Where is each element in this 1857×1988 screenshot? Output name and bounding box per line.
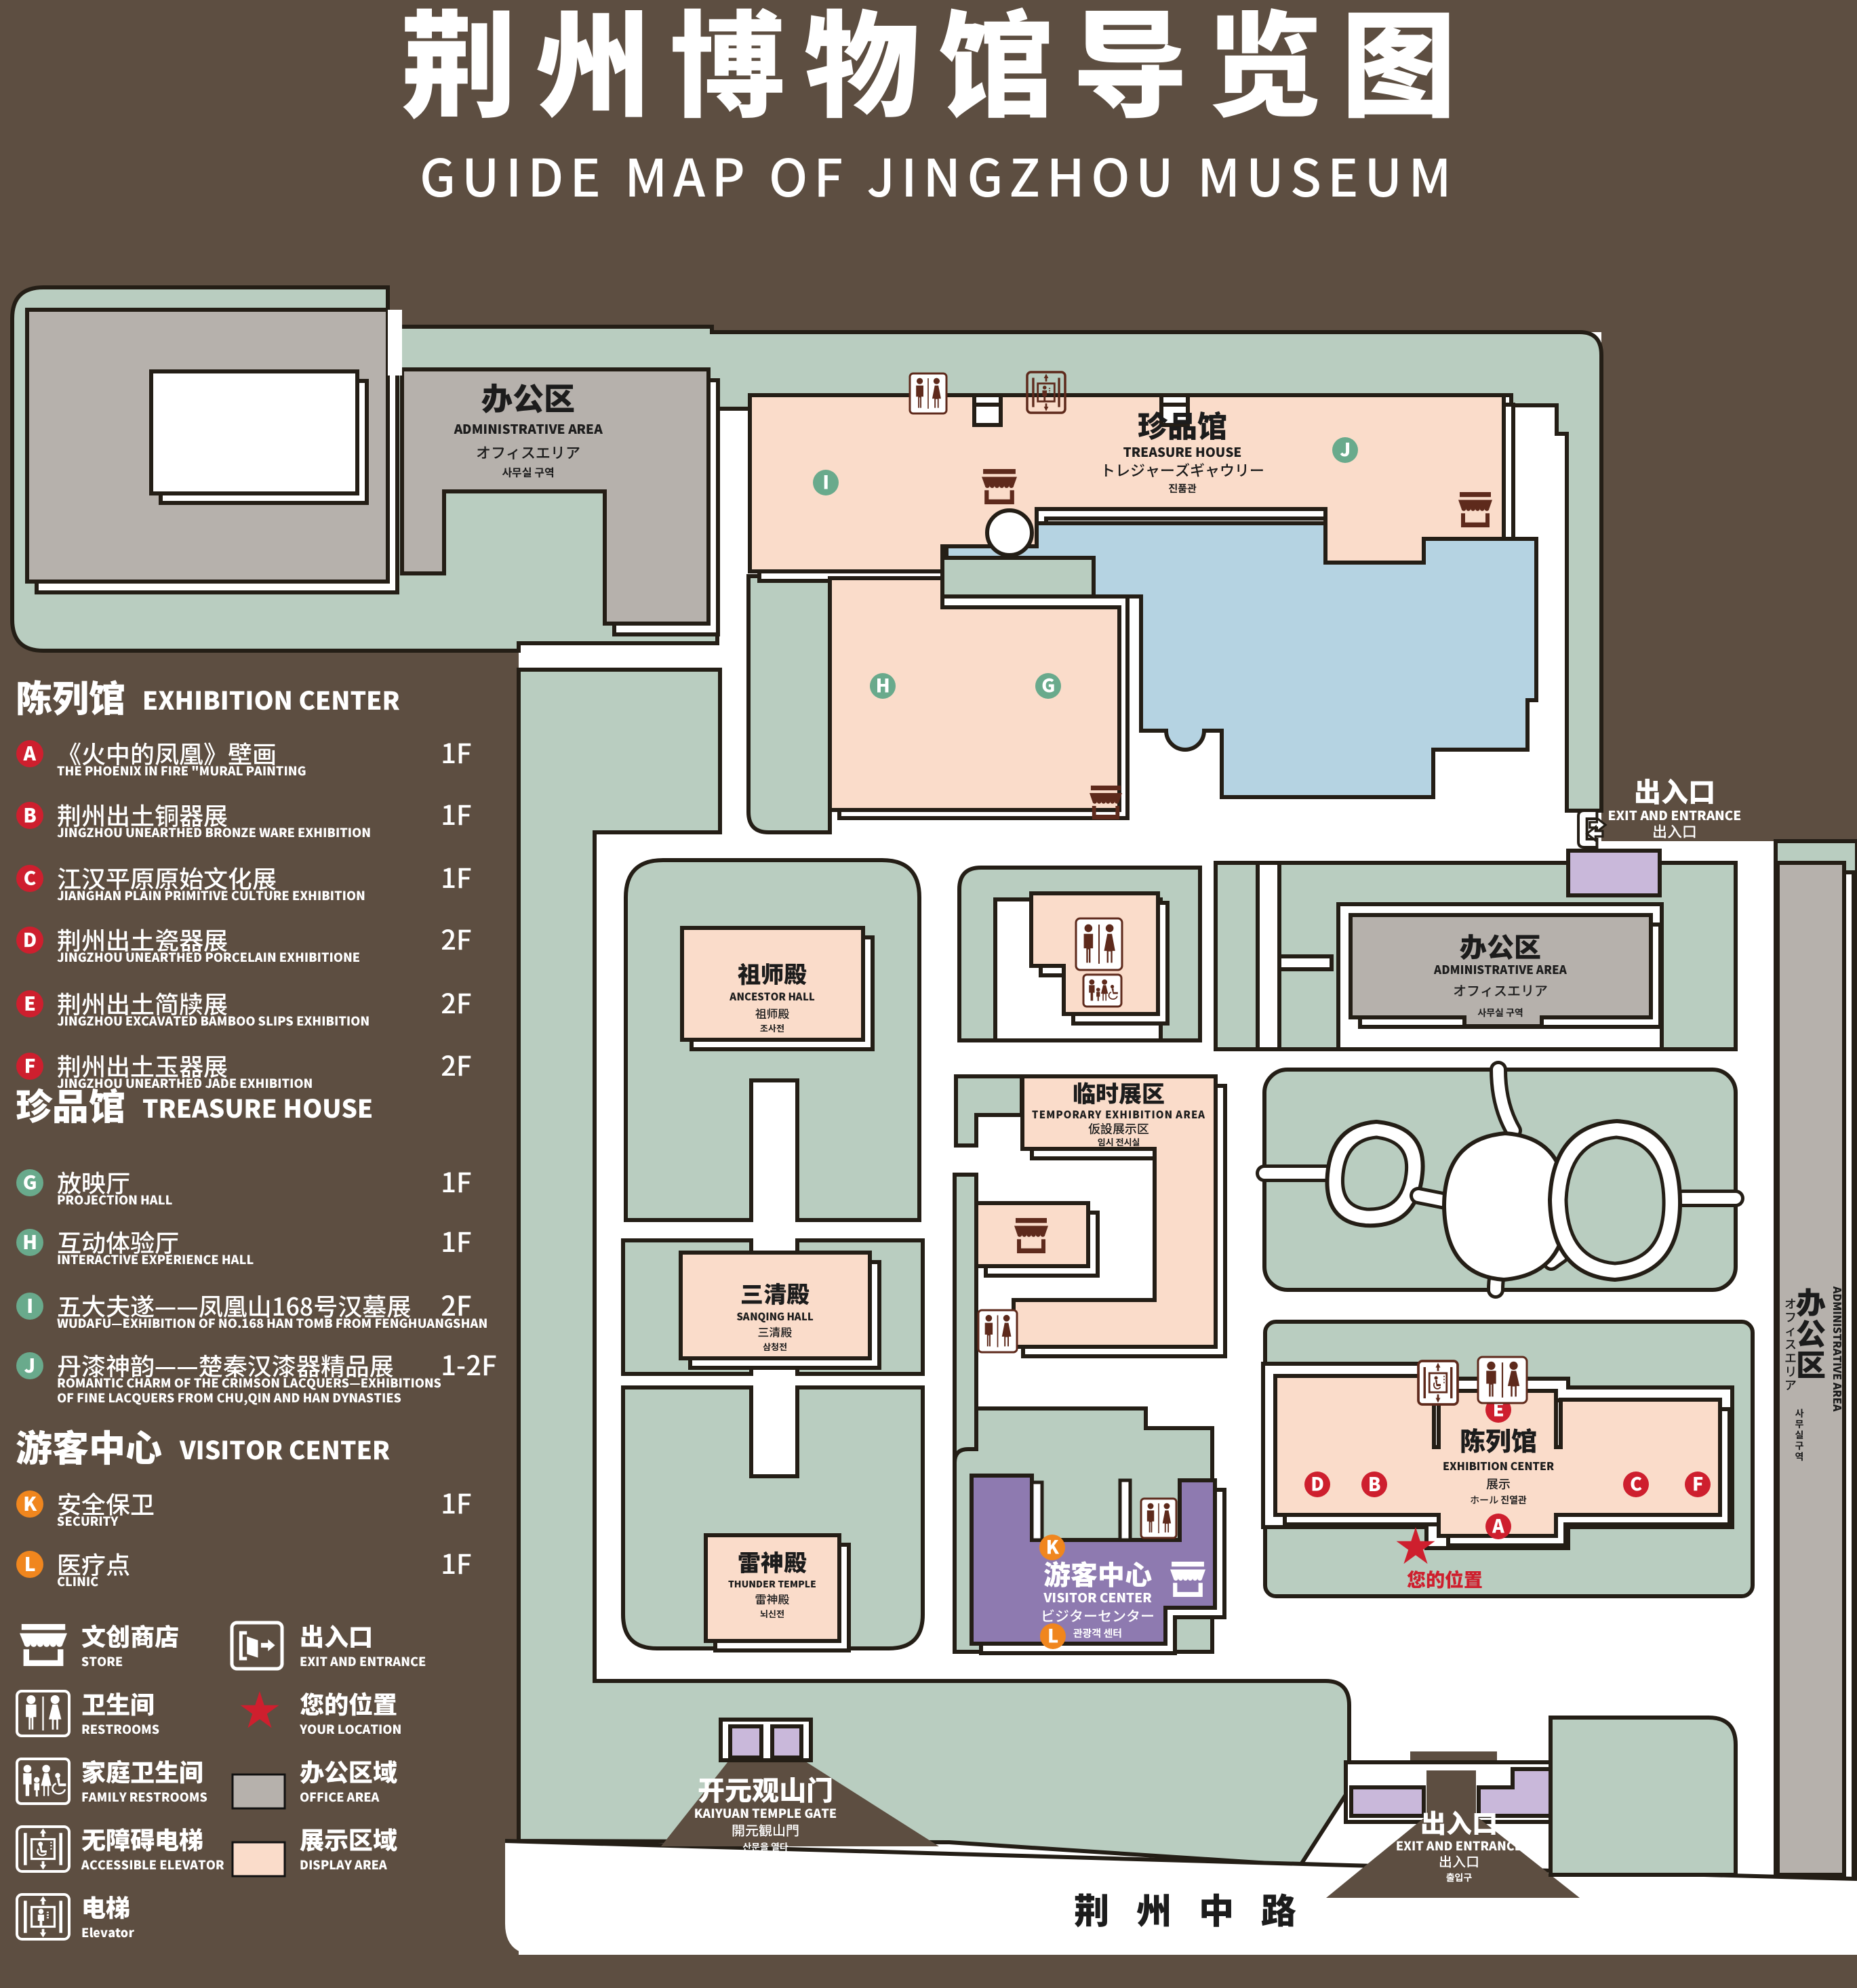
- svg-text:オフィスエリア: オフィスエリア: [476, 441, 580, 463]
- svg-text:뇌신전: 뇌신전: [760, 1607, 784, 1620]
- svg-text:산문을 열다: 산문을 열다: [742, 1840, 788, 1854]
- svg-text:JINGZHOU EXCAVATED BAMBOO SLIP: JINGZHOU EXCAVATED BAMBOO SLIPS EXHIBITI…: [57, 1012, 370, 1030]
- svg-text:出入口: 出入口: [1652, 820, 1697, 842]
- svg-text:您的位置: 您的位置: [1407, 1566, 1483, 1593]
- svg-text:TREASURE HOUSE: TREASURE HOUSE: [1123, 443, 1242, 461]
- svg-text:E: E: [24, 990, 36, 1017]
- svg-text:陈列馆: 陈列馆: [1460, 1421, 1537, 1458]
- svg-text:사무실 구역: 사무실 구역: [1477, 1006, 1523, 1019]
- svg-text:F: F: [1692, 1470, 1703, 1497]
- svg-text:JINGZHOU UNEARTHED PORCELAIN E: JINGZHOU UNEARTHED PORCELAIN EXHIBITIONE: [57, 948, 360, 966]
- svg-text:JIANGHAN PLAIN PRIMITIVE CULTU: JIANGHAN PLAIN PRIMITIVE CULTURE EXHIBIT…: [57, 887, 365, 904]
- svg-text:임시 전시실: 임시 전시실: [1098, 1135, 1140, 1148]
- svg-text:JINGZHOU UNEARTHED BRONZE WARE: JINGZHOU UNEARTHED BRONZE WARE EXHIBITIO…: [57, 824, 371, 841]
- svg-text:GUIDE MAP OF JINGZHOU MUSEUM: GUIDE MAP OF JINGZHOU MUSEUM: [420, 137, 1458, 211]
- svg-text:B: B: [23, 801, 36, 828]
- svg-text:G: G: [23, 1169, 37, 1196]
- svg-text:展示: 展示: [1486, 1475, 1511, 1493]
- svg-text:三清殿: 三清殿: [758, 1323, 793, 1340]
- svg-text:PROJECTION HALL: PROJECTION HALL: [57, 1191, 173, 1209]
- svg-text:办公区域: 办公区域: [300, 1753, 397, 1789]
- svg-text:电梯: 电梯: [81, 1889, 130, 1924]
- svg-text:ビジターセンター: ビジターセンター: [1041, 1606, 1155, 1626]
- svg-text:1F: 1F: [441, 1482, 471, 1522]
- svg-text:出入口: 出入口: [1420, 1803, 1498, 1840]
- svg-text:荆 州 中 路: 荆 州 中 路: [1074, 1883, 1306, 1934]
- svg-text:荆州博物馆导览图: 荆州博物馆导览图: [401, 0, 1475, 140]
- svg-text:G: G: [1041, 672, 1055, 698]
- svg-text:RESTROOMS: RESTROOMS: [81, 1720, 159, 1738]
- svg-text:雷神殿: 雷神殿: [755, 1590, 790, 1607]
- svg-text:B: B: [1368, 1470, 1381, 1497]
- svg-text:J: J: [24, 1352, 35, 1379]
- svg-text:无障碍电梯: 无障碍电梯: [81, 1821, 203, 1857]
- svg-text:K: K: [23, 1490, 37, 1517]
- svg-text:C: C: [1630, 1470, 1642, 1497]
- svg-text:EXIT AND ENTRANCE: EXIT AND ENTRANCE: [300, 1652, 426, 1670]
- svg-text:C: C: [24, 864, 37, 891]
- svg-text:출입구: 출입구: [1446, 1871, 1473, 1884]
- svg-text:VISITOR CENTER: VISITOR CENTER: [179, 1430, 390, 1467]
- svg-text:办公区: 办公区: [481, 375, 575, 420]
- svg-text:THUNDER TEMPLE: THUNDER TEMPLE: [728, 1577, 816, 1591]
- svg-text:출입구: 출입구: [1660, 840, 1689, 855]
- svg-text:1F: 1F: [441, 794, 471, 833]
- svg-text:1F: 1F: [441, 732, 471, 771]
- svg-text:三清殿: 三清殿: [740, 1276, 810, 1310]
- svg-text:TREASURE HOUSE: TREASURE HOUSE: [142, 1089, 373, 1125]
- svg-text:2F: 2F: [441, 982, 471, 1021]
- svg-text:游客中心: 游客中心: [1043, 1554, 1152, 1593]
- svg-text:办公区: 办公区: [1796, 1279, 1826, 1385]
- svg-text:A: A: [1492, 1512, 1505, 1539]
- svg-text:D: D: [23, 926, 37, 953]
- svg-text:文创商店: 文创商店: [81, 1618, 179, 1653]
- svg-text:진품관: 진품관: [1168, 481, 1196, 495]
- svg-text:I: I: [26, 1292, 33, 1319]
- svg-text:SANQING HALL: SANQING HALL: [736, 1310, 813, 1324]
- svg-text:ADMINISTRATIVE AREA: ADMINISTRATIVE AREA: [1830, 1286, 1846, 1412]
- svg-text:家庭卫生间: 家庭卫生间: [81, 1753, 203, 1789]
- svg-text:VISITOR CENTER: VISITOR CENTER: [1043, 1588, 1152, 1606]
- svg-text:2F: 2F: [441, 1044, 471, 1084]
- svg-text:STORE: STORE: [81, 1652, 123, 1670]
- svg-text:出入口: 出入口: [1439, 1851, 1479, 1871]
- svg-text:WUDAFU—EXHIBITION OF NO.168 HA: WUDAFU—EXHIBITION OF NO.168 HAN TOMB FRO…: [57, 1314, 487, 1332]
- svg-text:EXHIBITION CENTER: EXHIBITION CENTER: [142, 681, 400, 717]
- svg-text:オフィスエリア: オフィスエリア: [1784, 1295, 1797, 1394]
- svg-text:THE PHOENIX IN FIRE "MURAL PAI: THE PHOENIX IN FIRE "MURAL PAINTING: [57, 762, 306, 779]
- svg-text:D: D: [1311, 1470, 1324, 1497]
- svg-text:L: L: [24, 1550, 36, 1577]
- svg-text:사무실구역: 사무실구역: [1795, 1406, 1804, 1463]
- svg-text:EXHIBITION CENTER: EXHIBITION CENTER: [1443, 1457, 1554, 1474]
- svg-text:1F: 1F: [441, 1161, 471, 1200]
- svg-text:YOUR LOCATION: YOUR LOCATION: [299, 1720, 401, 1738]
- svg-text:INTERACTIVE EXPERIENCE HALL: INTERACTIVE EXPERIENCE HALL: [57, 1251, 254, 1268]
- svg-text:珍品馆: 珍品馆: [1138, 403, 1227, 446]
- svg-text:ホール 진열관: ホール 진열관: [1470, 1493, 1527, 1507]
- svg-text:临时展区: 临时展区: [1073, 1076, 1165, 1109]
- svg-text:OFFICE AREA: OFFICE AREA: [300, 1788, 380, 1806]
- svg-text:雷神殿: 雷神殿: [738, 1545, 807, 1578]
- svg-text:您的位置: 您的位置: [300, 1686, 397, 1721]
- svg-text:游客中心: 游客中心: [16, 1419, 162, 1472]
- svg-text:1-2F: 1-2F: [441, 1344, 497, 1383]
- svg-text:조사전: 조사전: [760, 1021, 784, 1034]
- svg-text:珍品馆: 珍品馆: [16, 1077, 125, 1131]
- svg-text:A: A: [23, 739, 37, 767]
- svg-text:办公区: 办公区: [1460, 926, 1541, 965]
- svg-text:CLINIC: CLINIC: [57, 1573, 98, 1590]
- svg-text:ADMINISTRATIVE AREA: ADMINISTRATIVE AREA: [454, 420, 603, 438]
- svg-text:Elevator: Elevator: [81, 1924, 134, 1941]
- svg-text:OF FINE LACQUERS FROM CHU,QIN: OF FINE LACQUERS FROM CHU,QIN AND HAN DY…: [57, 1389, 401, 1406]
- svg-text:オフィスエリア: オフィスエリア: [1453, 980, 1548, 1000]
- svg-text:祖师殿: 祖师殿: [755, 1005, 790, 1021]
- svg-text:2F: 2F: [441, 918, 471, 958]
- svg-text:J: J: [1340, 436, 1351, 462]
- svg-text:FAMILY RESTROOMS: FAMILY RESTROOMS: [81, 1788, 207, 1806]
- svg-text:トレジャーズギャウリー: トレジャーズギャウリー: [1100, 459, 1264, 481]
- svg-text:卫生间: 卫生间: [81, 1686, 155, 1721]
- svg-text:祖师殿: 祖师殿: [738, 956, 807, 990]
- svg-text:관광객 센터: 관광객 센터: [1073, 1626, 1122, 1640]
- svg-text:I: I: [822, 468, 828, 495]
- svg-text:DISPLAY AREA: DISPLAY AREA: [300, 1856, 387, 1873]
- svg-text:1F: 1F: [441, 1221, 471, 1260]
- svg-text:F: F: [24, 1052, 36, 1079]
- svg-text:1F: 1F: [441, 857, 471, 896]
- svg-text:삼청전: 삼청전: [763, 1340, 787, 1353]
- svg-text:2F: 2F: [441, 1284, 471, 1324]
- svg-text:H: H: [876, 672, 890, 698]
- svg-text:ACCESSIBLE ELEVATOR: ACCESSIBLE ELEVATOR: [81, 1856, 224, 1873]
- svg-text:陈列馆: 陈列馆: [16, 669, 125, 723]
- svg-text:ANCESTOR HALL: ANCESTOR HALL: [729, 990, 814, 1004]
- svg-text:SECURITY: SECURITY: [57, 1512, 119, 1530]
- svg-text:ADMINISTRATIVE AREA: ADMINISTRATIVE AREA: [1434, 960, 1568, 977]
- svg-text:出入口: 出入口: [300, 1618, 373, 1653]
- svg-text:1F: 1F: [441, 1543, 471, 1582]
- svg-text:出入口: 出入口: [1634, 771, 1715, 810]
- svg-text:開元観山門: 開元観山門: [732, 1820, 799, 1840]
- svg-text:사무실 구역: 사무실 구역: [502, 464, 554, 480]
- svg-text:H: H: [22, 1228, 37, 1255]
- svg-text:展示区域: 展示区域: [300, 1821, 397, 1857]
- svg-text:开元观山门: 开元观山门: [698, 1769, 833, 1808]
